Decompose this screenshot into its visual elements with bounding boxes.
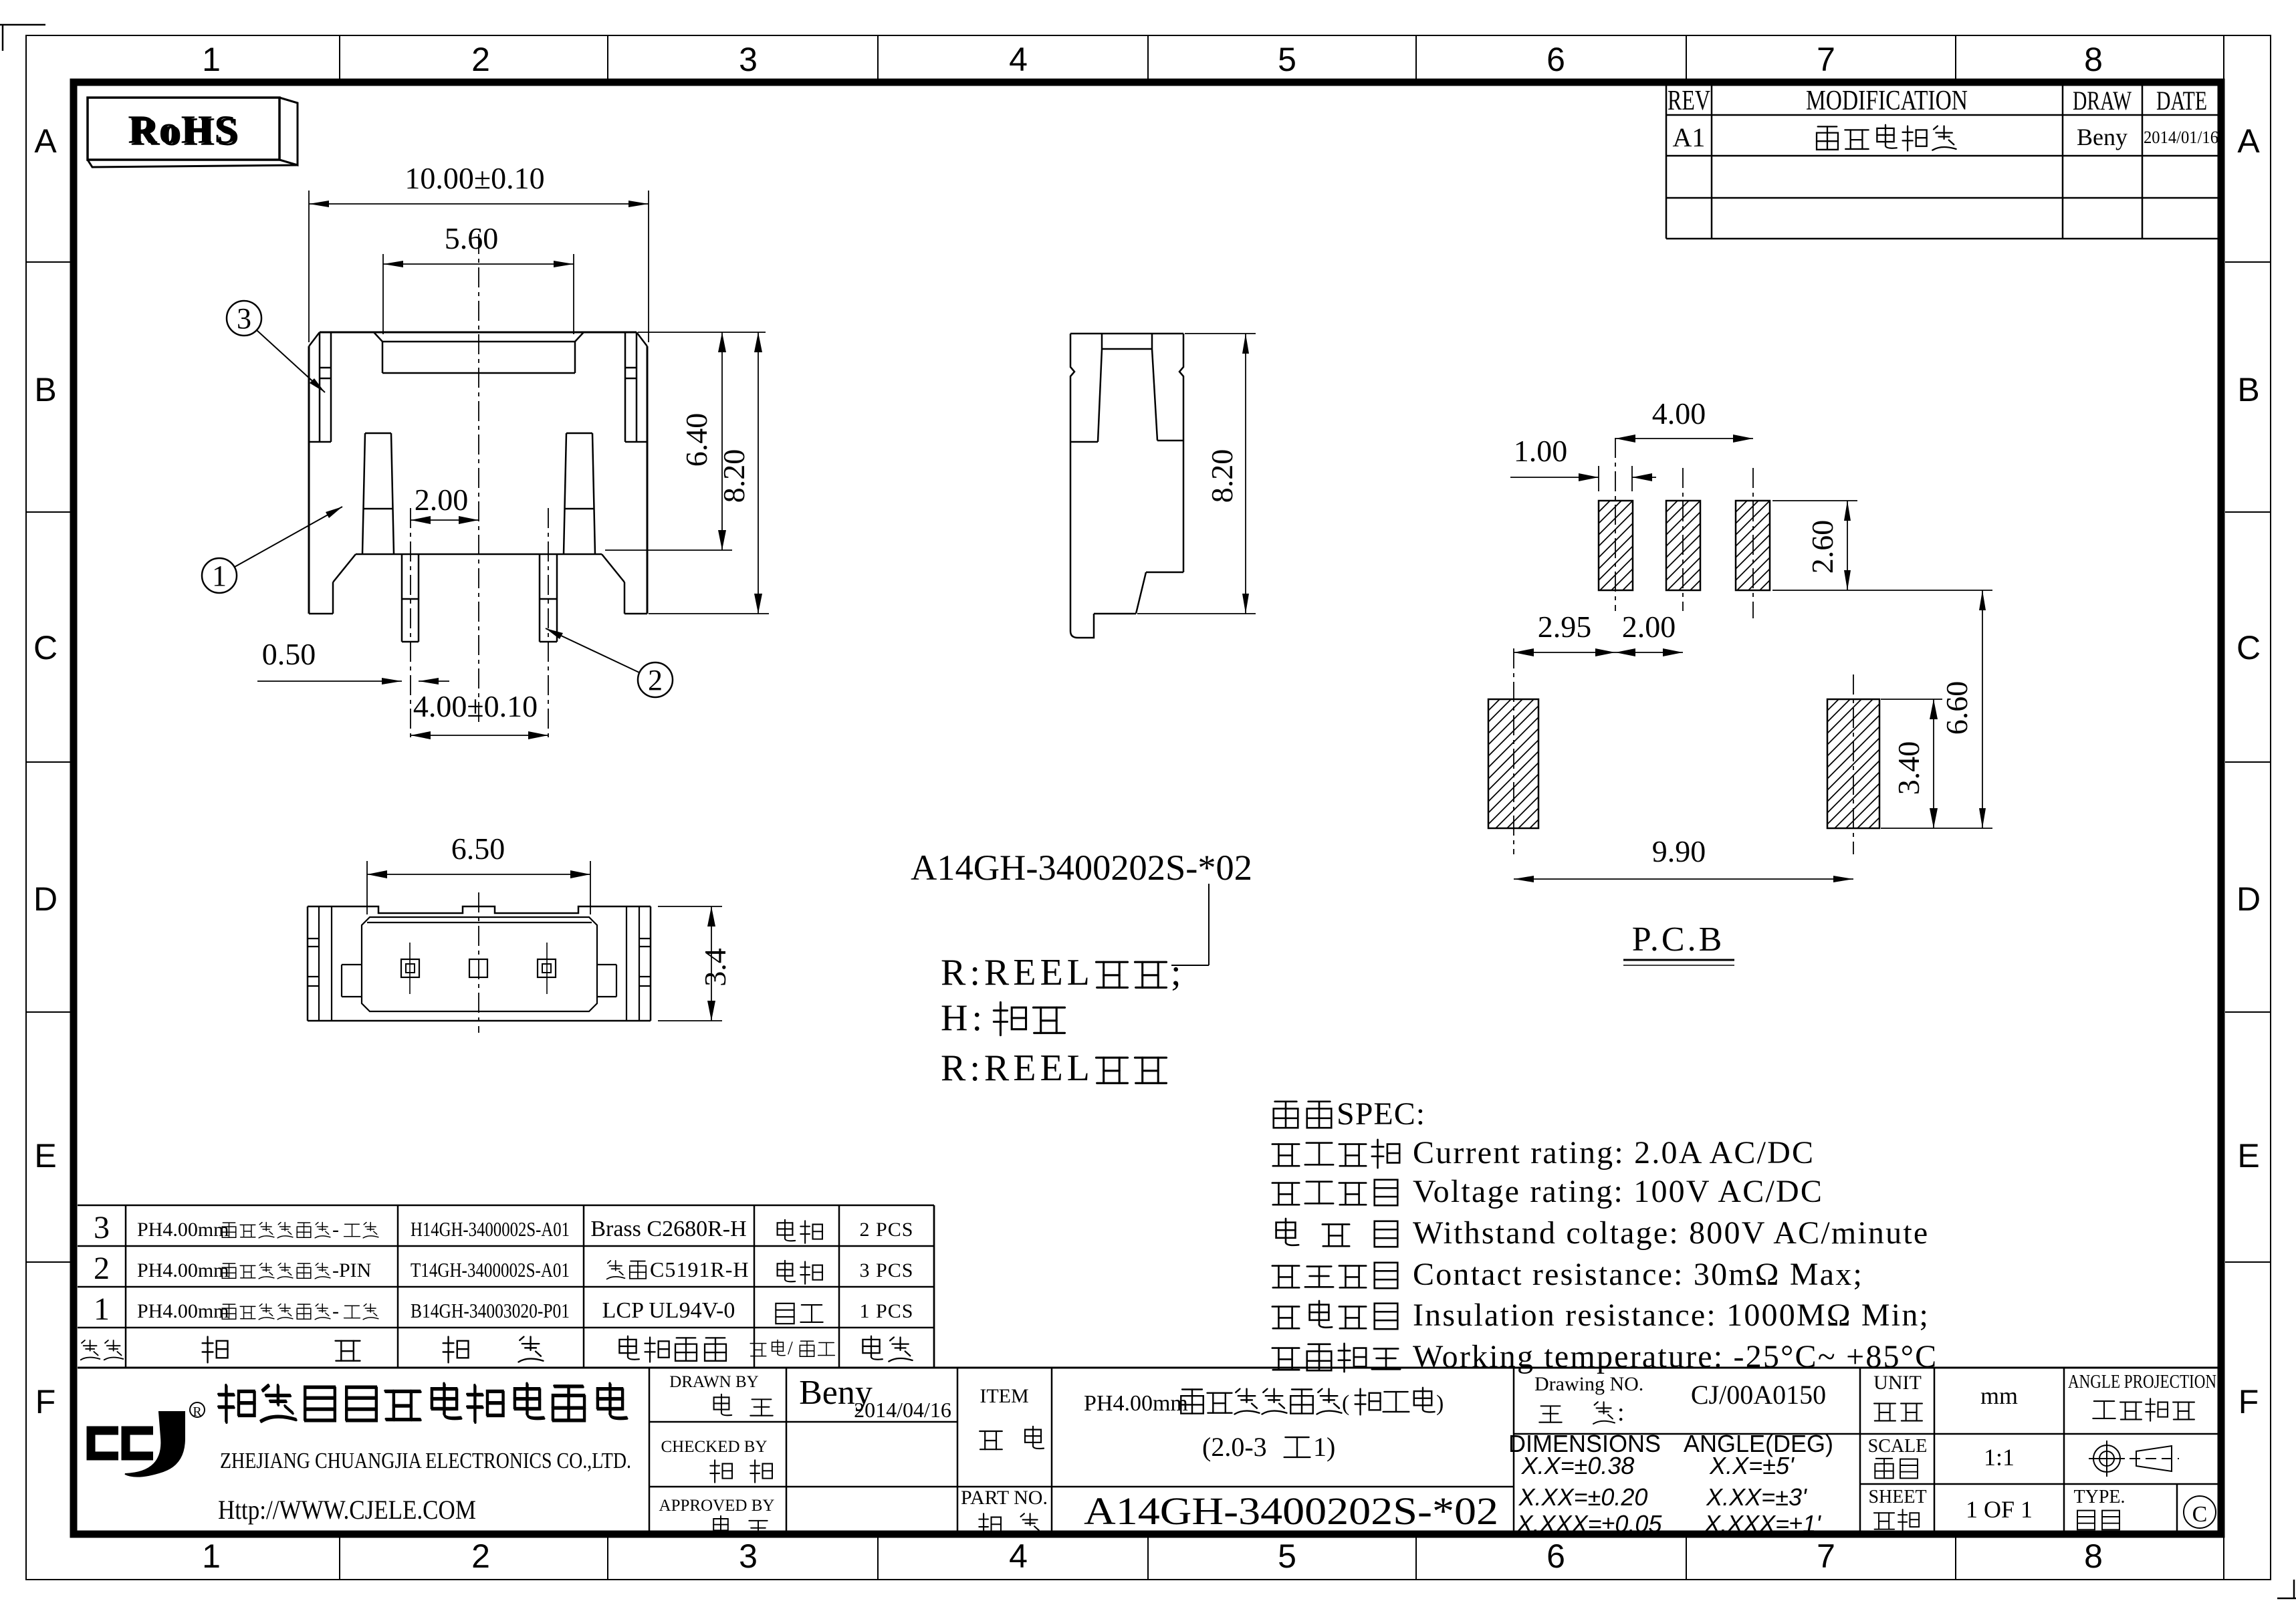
svg-text:2.95: 2.95 <box>1538 610 1592 644</box>
svg-text:R:REEL: R:REEL <box>941 1047 1094 1089</box>
svg-text:2 PCS: 2 PCS <box>860 1219 914 1241</box>
svg-text:PART NO.: PART NO. <box>961 1487 1048 1509</box>
svg-text:Working temperature: -25°C~ +8: Working temperature: -25°C~ +85°C <box>1413 1339 1938 1374</box>
svg-text:0.50: 0.50 <box>262 637 316 671</box>
svg-text:3.4: 3.4 <box>698 948 732 987</box>
svg-text:6.50: 6.50 <box>451 832 505 866</box>
svg-text:1.00: 1.00 <box>1514 434 1568 468</box>
svg-text:2.60: 2.60 <box>1805 520 1839 574</box>
svg-text:X.X=±0.38: X.X=±0.38 <box>1521 1452 1635 1479</box>
svg-text:3: 3 <box>739 1537 758 1575</box>
svg-text:C5191R-H: C5191R-H <box>650 1257 749 1281</box>
svg-text:8: 8 <box>2084 1537 2103 1575</box>
svg-text:3: 3 <box>237 302 251 335</box>
svg-text:X.XXX=±0.05: X.XXX=±0.05 <box>1516 1510 1663 1537</box>
svg-text:Current rating: 2.0A AC/DC: Current rating: 2.0A AC/DC <box>1413 1135 1815 1170</box>
svg-text:MODIFICATION: MODIFICATION <box>1806 86 1968 116</box>
svg-text:Beny: Beny <box>2077 124 2128 150</box>
svg-text::: : <box>1617 1398 1625 1427</box>
svg-text:A14GH-3400202S-*02: A14GH-3400202S-*02 <box>1084 1489 1498 1533</box>
svg-text:5: 5 <box>1278 1537 1296 1575</box>
svg-text:3: 3 <box>739 41 758 78</box>
svg-text:7: 7 <box>1817 41 1835 78</box>
svg-text:1:1: 1:1 <box>1984 1444 2015 1471</box>
svg-text:A1: A1 <box>1673 122 1706 152</box>
svg-text:P.C.B: P.C.B <box>1632 920 1725 959</box>
svg-text:1 OF 1: 1 OF 1 <box>1966 1496 2033 1523</box>
svg-text:(: ( <box>1342 1391 1349 1416</box>
svg-text:1 PCS: 1 PCS <box>860 1300 914 1322</box>
svg-text:5.60: 5.60 <box>445 221 499 255</box>
svg-text:Brass C2680R-H: Brass C2680R-H <box>590 1217 746 1241</box>
svg-text:1: 1 <box>202 41 221 78</box>
svg-text:SPEC:: SPEC: <box>1337 1096 1425 1132</box>
svg-text:6.60: 6.60 <box>1940 681 1974 735</box>
svg-text:E: E <box>34 1137 56 1175</box>
svg-text:2: 2 <box>648 664 663 697</box>
svg-text:CHECKED BY: CHECKED BY <box>661 1438 767 1456</box>
svg-text:6: 6 <box>1546 41 1565 78</box>
svg-text:2: 2 <box>94 1251 110 1286</box>
svg-text:A: A <box>2237 122 2260 160</box>
svg-text:PH4.00mm: PH4.00mm <box>137 1219 229 1241</box>
svg-text:-: - <box>332 1219 339 1241</box>
svg-text:2014/04/16: 2014/04/16 <box>854 1398 951 1422</box>
svg-text:2: 2 <box>471 1537 490 1575</box>
svg-text:Withstand coltage: 800V AC/min: Withstand coltage: 800V AC/minute <box>1413 1215 1929 1251</box>
svg-text:PH4.00mm: PH4.00mm <box>1084 1391 1188 1416</box>
svg-text:ITEM: ITEM <box>980 1385 1028 1407</box>
svg-text:2.00: 2.00 <box>415 483 469 517</box>
svg-text:B14GH-34003020-P01: B14GH-34003020-P01 <box>411 1299 570 1322</box>
svg-text:R: R <box>193 1404 202 1419</box>
svg-text:1: 1 <box>94 1291 110 1327</box>
svg-text:APPROVED BY: APPROVED BY <box>659 1497 775 1515</box>
svg-text:1): 1) <box>1313 1432 1335 1462</box>
svg-text:7: 7 <box>1817 1537 1835 1575</box>
svg-text:PH4.00mm: PH4.00mm <box>137 1259 229 1281</box>
svg-text:Drawing NO.: Drawing NO. <box>1534 1373 1643 1395</box>
svg-text:R:REEL: R:REEL <box>941 952 1094 993</box>
svg-text:6.40: 6.40 <box>679 413 713 467</box>
svg-text:;: ; <box>1171 952 1185 993</box>
svg-text:CJ/00A0150: CJ/00A0150 <box>1691 1380 1826 1410</box>
svg-text:UNIT: UNIT <box>1873 1372 1922 1394</box>
svg-text:A: A <box>34 122 57 160</box>
svg-text:4.00: 4.00 <box>1652 396 1706 430</box>
svg-text:ZHEJIANG CHUANGJIA ELECTRONICS: ZHEJIANG CHUANGJIA ELECTRONICS CO.,LTD. <box>220 1449 631 1473</box>
svg-text:2014/01/16: 2014/01/16 <box>2144 128 2218 147</box>
svg-text:2.00: 2.00 <box>1622 610 1676 644</box>
svg-text:1: 1 <box>212 560 227 592</box>
svg-text:B: B <box>34 371 56 408</box>
svg-text:4: 4 <box>1009 41 1028 78</box>
svg-text:9.90: 9.90 <box>1652 834 1706 868</box>
svg-text:(2.0-3: (2.0-3 <box>1202 1432 1267 1462</box>
svg-text:3.40: 3.40 <box>1891 741 1926 795</box>
svg-text:H14GH-3400002S-A01: H14GH-3400002S-A01 <box>411 1217 570 1241</box>
svg-text:RoHS: RoHS <box>128 108 238 152</box>
svg-text:C: C <box>33 629 58 666</box>
svg-text:B: B <box>2237 371 2259 408</box>
svg-text:3 PCS: 3 PCS <box>860 1259 914 1281</box>
svg-text:ANGLE PROJECTION: ANGLE PROJECTION <box>2068 1372 2216 1392</box>
svg-text:X.XXX=±1': X.XXX=±1' <box>1704 1510 1821 1537</box>
svg-text:8.20: 8.20 <box>1205 449 1239 503</box>
svg-text:mm: mm <box>1980 1382 2018 1409</box>
svg-text:): ) <box>1436 1391 1444 1416</box>
svg-text:2: 2 <box>471 41 490 78</box>
svg-text:F: F <box>2238 1383 2259 1420</box>
svg-text:PH4.00mm: PH4.00mm <box>137 1300 229 1322</box>
svg-text:8: 8 <box>2084 41 2103 78</box>
svg-text:TYPE.: TYPE. <box>2074 1487 2126 1507</box>
svg-text:DRAWN BY: DRAWN BY <box>669 1373 758 1391</box>
svg-text:3: 3 <box>94 1210 110 1245</box>
svg-text:X.XX=±3': X.XX=±3' <box>1706 1483 1807 1511</box>
svg-text:H:: H: <box>941 997 986 1039</box>
svg-text:Contact resistance: 30mΩ Max;: Contact resistance: 30mΩ Max; <box>1413 1257 1863 1292</box>
svg-text:T14GH-3400002S-A01: T14GH-3400002S-A01 <box>411 1258 570 1281</box>
svg-text:8.20: 8.20 <box>717 449 751 503</box>
svg-text:4: 4 <box>1009 1537 1028 1575</box>
svg-text:D: D <box>33 880 58 918</box>
svg-text:/: / <box>788 1338 794 1359</box>
svg-text:X.X=±5': X.X=±5' <box>1709 1452 1795 1479</box>
svg-text:DATE: DATE <box>2156 86 2207 116</box>
svg-text:Http://WWW.CJELE.COM: Http://WWW.CJELE.COM <box>218 1495 476 1525</box>
svg-text:Voltage rating: 100V AC/DC: Voltage rating: 100V AC/DC <box>1413 1174 1823 1209</box>
svg-text:LCP UL94V-0: LCP UL94V-0 <box>602 1298 735 1323</box>
svg-text:5: 5 <box>1278 41 1296 78</box>
svg-text:SCALE: SCALE <box>1868 1436 1928 1457</box>
svg-text:DRAW: DRAW <box>2073 86 2132 116</box>
svg-text:Insulation resistance: 1000MΩ: Insulation resistance: 1000MΩ Min; <box>1413 1297 1930 1333</box>
svg-text:C: C <box>2236 629 2261 666</box>
svg-text:D: D <box>2236 880 2261 918</box>
svg-text:A14GH-3400202S-*02: A14GH-3400202S-*02 <box>911 848 1252 888</box>
svg-text:REV: REV <box>1668 86 1710 116</box>
svg-text:X.XX=±0.20: X.XX=±0.20 <box>1518 1483 1648 1511</box>
svg-text:4.00±0.10: 4.00±0.10 <box>413 689 538 723</box>
svg-text:E: E <box>2237 1137 2259 1175</box>
svg-text:6: 6 <box>1546 1537 1565 1575</box>
svg-text:10.00±0.10: 10.00±0.10 <box>405 161 544 195</box>
svg-text:F: F <box>35 1383 56 1420</box>
svg-text:-PIN: -PIN <box>332 1259 371 1281</box>
svg-text:1: 1 <box>202 1537 221 1575</box>
svg-text:-: - <box>332 1300 339 1322</box>
svg-text:SHEET: SHEET <box>1868 1487 1926 1507</box>
svg-text:C: C <box>2192 1502 2208 1527</box>
